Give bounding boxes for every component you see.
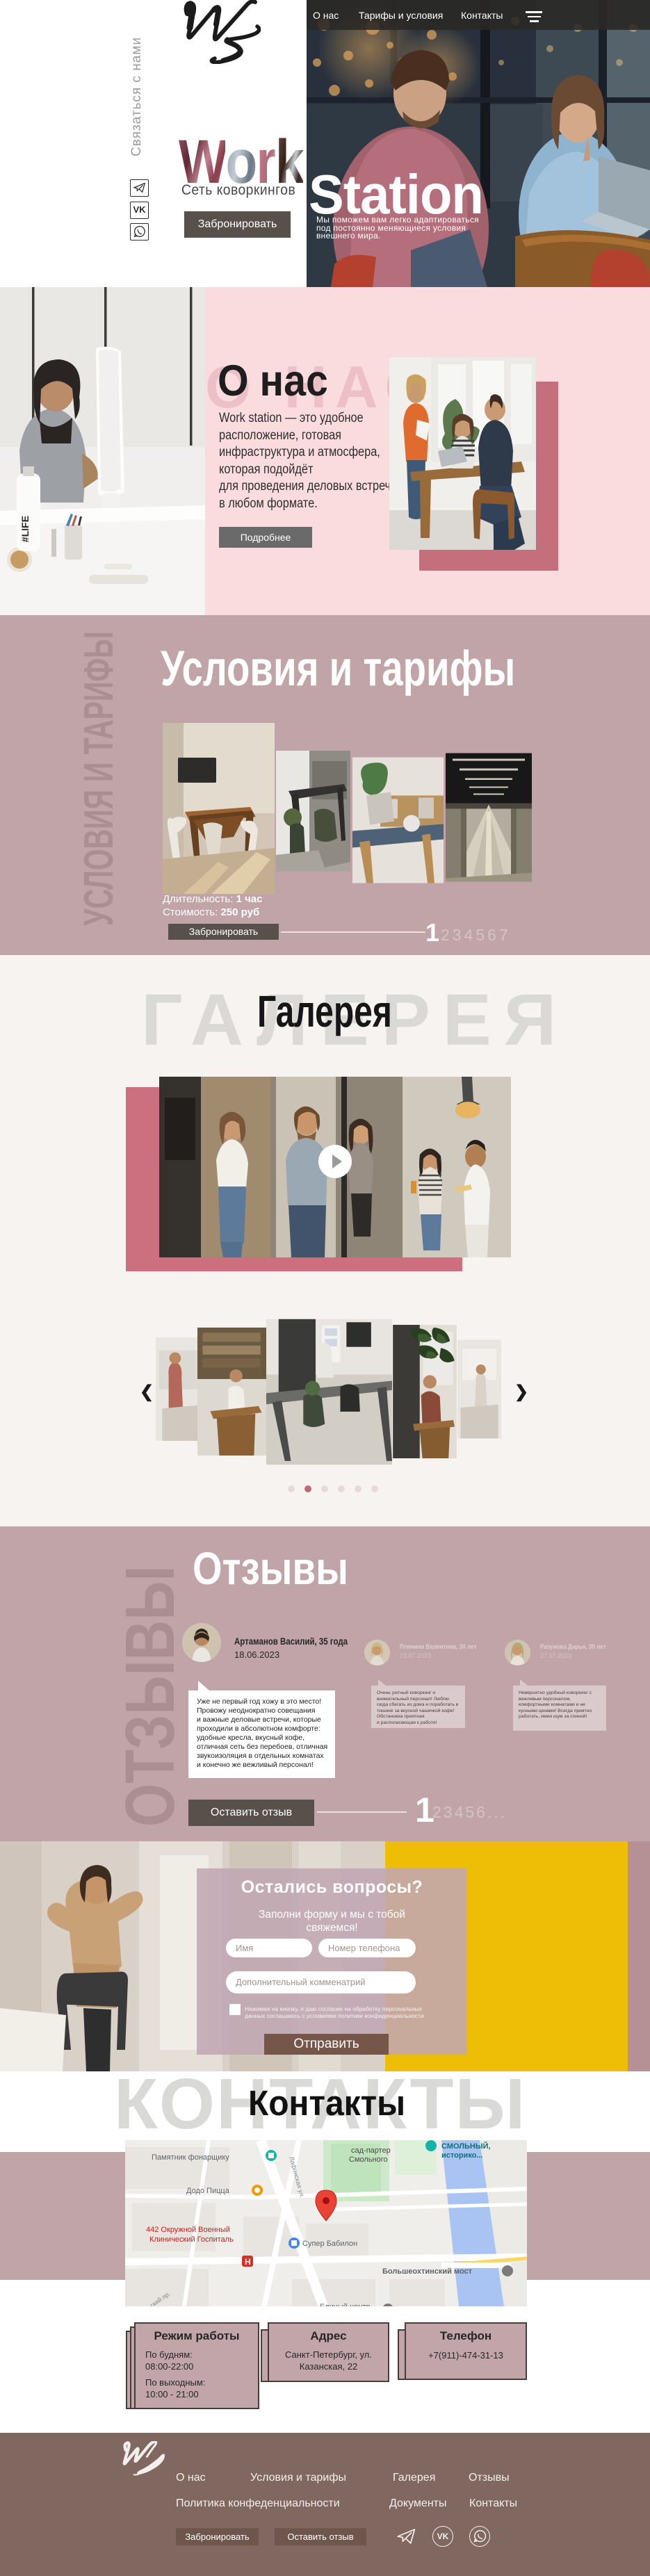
svg-text:Большеохтинский мост: Большеохтинский мост xyxy=(382,2267,473,2276)
svg-text:Клинический Госпиталь: Клинический Госпиталь xyxy=(149,2235,234,2244)
svg-text:Смольного: Смольного xyxy=(349,2155,388,2164)
svg-text:#LIFE: #LIFE xyxy=(19,516,31,542)
svg-text:Памятник фонарщику: Памятник фонарщику xyxy=(152,2153,229,2162)
svg-text:Единый центр: Единый центр xyxy=(320,2303,371,2306)
svg-text:H: H xyxy=(245,2257,251,2267)
svg-text:СМОЛЬНЫЙ,: СМОЛЬНЫЙ, xyxy=(441,2142,491,2151)
svg-text:Супер Бабилон: Супер Бабилон xyxy=(302,2240,357,2248)
svg-text:Додо Пицца: Додо Пицца xyxy=(186,2187,230,2195)
svg-text:442 Окружной Военный: 442 Окружной Военный xyxy=(146,2226,230,2234)
svg-text:историко...: историко... xyxy=(441,2151,483,2160)
svg-text:сад-партер: сад-партер xyxy=(351,2146,391,2155)
